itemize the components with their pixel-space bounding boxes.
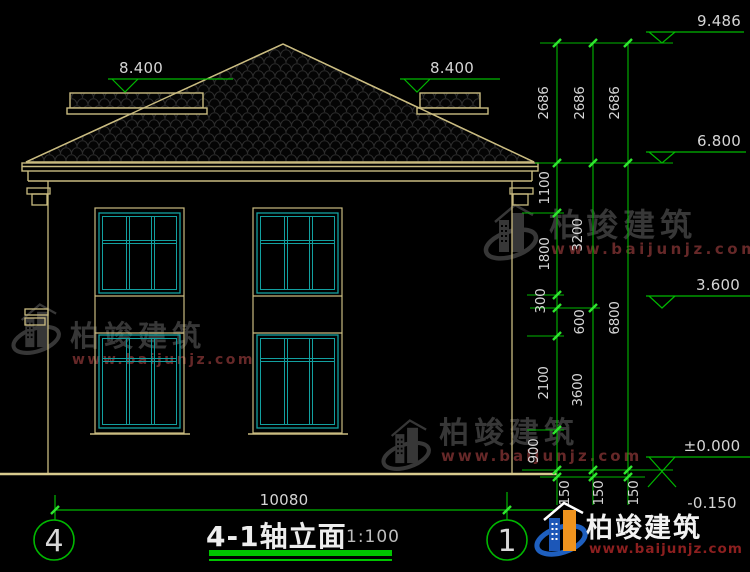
dim-label: 900 [526, 439, 542, 464]
dim-label: 150 [626, 481, 642, 506]
upper-window [257, 213, 338, 293]
dim-label: 6800 [607, 301, 623, 334]
drawing-title: 4-1轴立面 [206, 520, 347, 553]
axis-number-left: 4 [44, 524, 63, 559]
dim-label: 600 [572, 310, 588, 335]
title-underline-thick [209, 550, 392, 556]
watermark-brand-text: 柏竣建筑 [439, 416, 579, 451]
dim-label: 2686 [607, 86, 623, 119]
window-trim-frame [253, 208, 342, 433]
dim-label: 1800 [537, 237, 553, 270]
brand-logo-icon [533, 503, 588, 560]
eave-bracket-left [27, 188, 50, 205]
elevation-triangle-icon [404, 79, 430, 92]
upper-window [99, 213, 180, 293]
elevation-triangle-icon [649, 152, 675, 163]
dim-label: 300 [533, 289, 549, 314]
title-block: 4-1轴立面 1:100 [206, 520, 400, 561]
watermark-center-bottom: 柏竣建筑 www.baijunjz.com [380, 416, 642, 474]
elevation-triangle-icon [649, 296, 675, 308]
axis-number-right: 1 [497, 524, 516, 559]
dim-label: 3200 [570, 218, 586, 251]
level-value: 8.400 [119, 59, 163, 77]
watermark-right-middle: 柏竣建筑 www.baijunjz.com [482, 205, 750, 264]
level-value: 3.600 [696, 276, 740, 294]
eave-bracket-right [510, 188, 533, 205]
level-value: -0.150 [687, 494, 737, 512]
level-value: 8.400 [430, 59, 474, 77]
level-floor2: 3.600 [646, 276, 750, 308]
level-value: ±0.000 [684, 437, 741, 455]
watermark-brand-text: 柏竣建筑 [70, 319, 206, 353]
brand-url-text: www.baijunjz.com [589, 541, 743, 557]
elevation-triangle-icon [649, 32, 675, 43]
dim-label: 2686 [572, 86, 588, 119]
level-value: 6.800 [697, 132, 741, 150]
level-below-ground: -0.150 [687, 494, 737, 512]
watermark-logo-icon [482, 205, 539, 264]
bottom-dimension: 10080 [51, 491, 557, 520]
dim-label: 3600 [570, 373, 586, 406]
dim-label: 150 [557, 481, 573, 506]
level-eave: 6.800 [646, 132, 746, 163]
watermark-logo-icon [10, 305, 62, 358]
dim-label: 1100 [537, 171, 553, 204]
overall-width-label: 10080 [260, 491, 309, 509]
elevation-triangle-icon [112, 79, 138, 92]
dim-label: 150 [591, 481, 607, 506]
drawing-scale: 1:100 [346, 527, 400, 547]
level-value: 9.486 [697, 12, 741, 30]
level-wing-right: 8.400 [400, 59, 500, 92]
lower-window [257, 335, 338, 428]
cad-elevation-drawing: 柏竣建筑 www.baijunjz.com 柏竣建筑 www.baijunjz.… [0, 0, 750, 572]
drawing-surface: 柏竣建筑 www.baijunjz.com 柏竣建筑 www.baijunjz.… [0, 0, 750, 572]
level-ridge: 9.486 [646, 12, 744, 43]
wing-parapet-right [417, 93, 488, 114]
watermark-logo-icon [380, 421, 432, 474]
dim-label: 2686 [536, 86, 552, 119]
dim-label: 2100 [536, 366, 552, 399]
window-unit-right [248, 208, 348, 434]
title-underline-thin [209, 559, 392, 561]
brand-name-text: 柏竣建筑 [586, 512, 702, 544]
level-zero: ±0.000 [646, 437, 750, 487]
